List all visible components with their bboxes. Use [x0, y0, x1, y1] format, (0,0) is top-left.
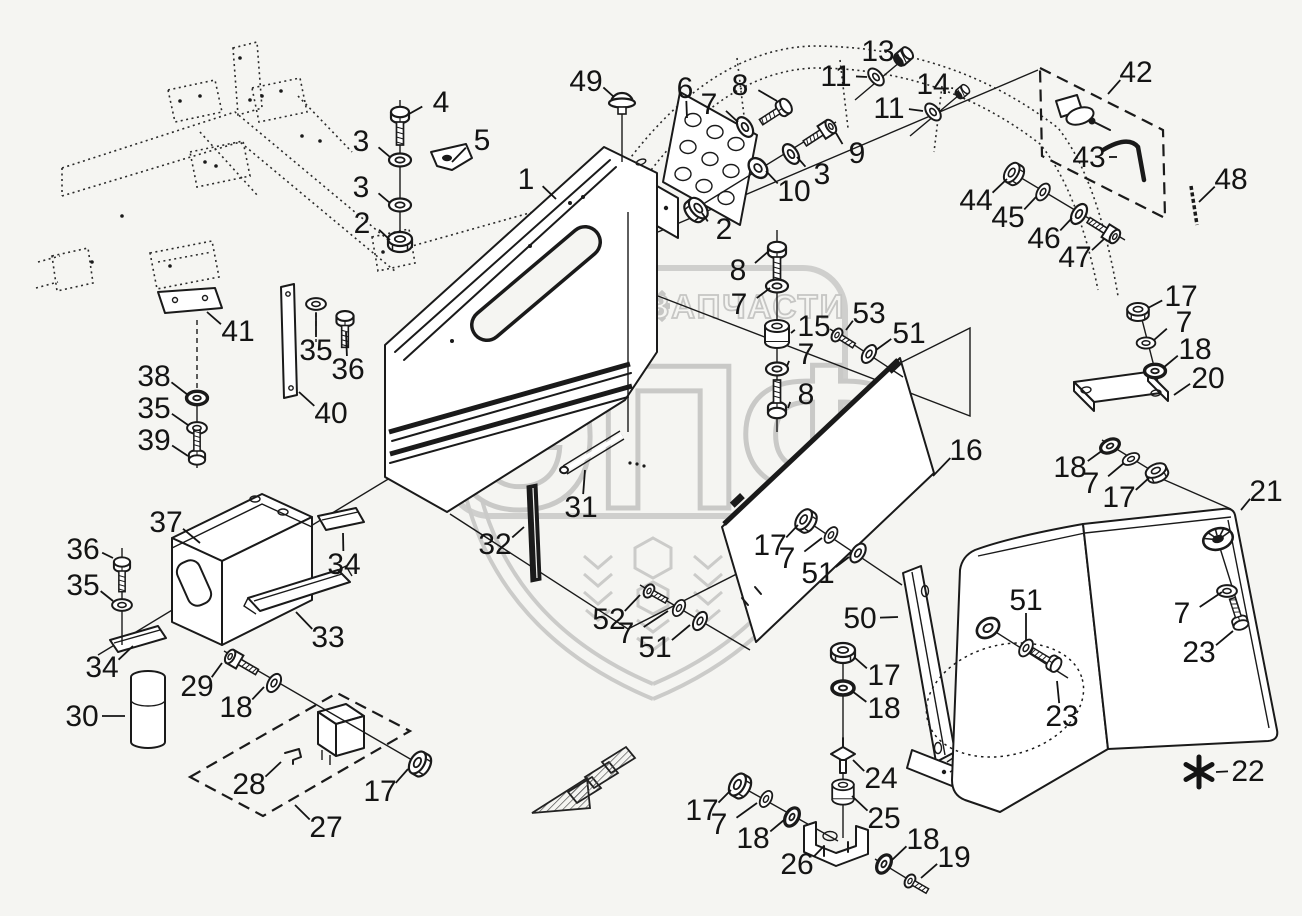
footnote-asterisk [1186, 757, 1212, 787]
callout-label-26: 26 [780, 848, 813, 881]
callout-label-18: 18 [219, 691, 252, 724]
callout-label-53: 53 [852, 297, 885, 330]
callout-label-7: 7 [1083, 467, 1100, 500]
grease-canister-30 [131, 671, 165, 748]
callout-label-8: 8 [798, 378, 815, 411]
callout-label-34: 34 [85, 651, 118, 684]
callout-label-33: 33 [311, 621, 344, 654]
callout-leader [1216, 771, 1228, 772]
allen-key-43 [1103, 142, 1144, 180]
callout-leader [737, 803, 757, 818]
callout-leader [853, 760, 864, 771]
callout-label-43: 43 [1072, 141, 1105, 174]
callout-leader [854, 657, 867, 668]
callout-leader [1024, 197, 1036, 209]
relay-28 [285, 704, 364, 765]
callout-leader [892, 846, 906, 860]
callout-label-45: 45 [991, 201, 1024, 234]
callout-label-17: 17 [1102, 481, 1135, 514]
strap-40 [281, 284, 297, 398]
callout-leader [856, 76, 867, 77]
callout-label-18: 18 [906, 823, 939, 856]
callout-label-3: 3 [353, 125, 370, 158]
callout-label-20: 20 [1191, 362, 1224, 395]
direction-arrow [532, 747, 635, 813]
callout-label-14: 14 [916, 68, 949, 101]
callout-leader [921, 864, 937, 878]
callout-label-10: 10 [777, 175, 810, 208]
callout-leader [852, 691, 866, 702]
pin-24 [831, 738, 855, 773]
callout-label-46: 46 [1027, 222, 1060, 255]
callout-label-37: 37 [149, 506, 182, 539]
callout-leader [836, 133, 843, 144]
callout-label-38: 38 [137, 360, 170, 393]
callout-leader [172, 414, 188, 425]
callout-label-28: 28 [232, 768, 265, 801]
callout-label-7: 7 [711, 808, 728, 841]
callout-leader [852, 796, 868, 811]
callout-leader [379, 230, 390, 240]
callout-label-7: 7 [701, 88, 718, 121]
callout-label-32: 32 [478, 528, 511, 561]
callout-leader [909, 109, 923, 111]
callout-leader [207, 312, 221, 324]
callout-leader [603, 87, 614, 97]
callout-label-17: 17 [867, 659, 900, 692]
callout-leader [252, 687, 264, 699]
callout-label-44: 44 [959, 184, 992, 217]
callout-label-35: 35 [299, 334, 332, 367]
callout-leader [1136, 477, 1150, 490]
callout-label-35: 35 [66, 569, 99, 602]
callout-leader [409, 107, 422, 114]
callout-label-49: 49 [569, 65, 602, 98]
callout-label-39: 39 [137, 424, 170, 457]
callout-label-36: 36 [331, 353, 364, 386]
tool-kit-box-42 [1040, 68, 1197, 225]
callout-label-29: 29 [180, 670, 213, 703]
callout-leader [171, 382, 188, 395]
callout-leader [766, 171, 778, 183]
callout-label-2: 2 [354, 207, 371, 240]
wing-bolt [1056, 95, 1110, 130]
callout-label-4: 4 [433, 86, 450, 119]
callout-label-25: 25 [867, 802, 900, 835]
callout-label-2: 2 [716, 213, 733, 246]
callout-label-18: 18 [867, 692, 900, 725]
callout-leader [1088, 450, 1103, 461]
callout-label-51: 51 [1009, 584, 1042, 617]
callout-label-1: 1 [518, 163, 535, 196]
callout-leader [672, 625, 690, 640]
callout-label-8: 8 [730, 254, 747, 287]
callout-label-7: 7 [731, 288, 748, 321]
parts-diagram-page: ТЕХНИКА ЗАПЧАСТИ ЭПФ [0, 0, 1302, 916]
callout-label-34: 34 [327, 548, 360, 581]
callout-leader [1154, 329, 1167, 340]
callout-label-13: 13 [861, 35, 894, 68]
callout-leader [265, 762, 281, 777]
callout-label-27: 27 [309, 811, 342, 844]
callout-label-31: 31 [564, 491, 597, 524]
callout-leader [299, 392, 314, 406]
callout-label-6: 6 [677, 72, 694, 105]
callout-leader [1174, 384, 1190, 395]
callout-label-51: 51 [892, 317, 925, 350]
callout-label-23: 23 [1045, 700, 1078, 733]
callout-label-51: 51 [801, 557, 834, 590]
callout-label-51: 51 [638, 631, 671, 664]
callout-label-7: 7 [798, 338, 815, 371]
callout-leader [1060, 218, 1072, 230]
callout-leader [396, 769, 408, 783]
callout-leader [933, 458, 950, 476]
callout-leader [101, 591, 113, 601]
battery-37 [172, 494, 312, 645]
callout-leader [770, 820, 784, 831]
pin-48 [1191, 186, 1197, 225]
callout-leader [102, 553, 113, 558]
callout-label-48: 48 [1214, 163, 1247, 196]
exploded-view-diagram: ТЕХНИКА ЗАПЧАСТИ ЭПФ [0, 0, 1302, 916]
callout-leader [755, 250, 770, 263]
callout-label-7: 7 [1174, 597, 1191, 630]
callout-leader [758, 90, 777, 101]
callout-label-18: 18 [736, 822, 769, 855]
callout-label-8: 8 [732, 69, 749, 102]
callout-leader [379, 193, 390, 203]
callout-label-3: 3 [814, 158, 831, 191]
hold-down-rail-34-top [318, 508, 364, 530]
callout-label-41: 41 [221, 315, 254, 348]
callout-label-16: 16 [949, 434, 982, 467]
cover-panel-21 [952, 509, 1277, 812]
callout-label-36: 36 [66, 533, 99, 566]
callout-label-40: 40 [314, 397, 347, 430]
callout-leader [1092, 239, 1104, 250]
callout-label-23: 23 [1182, 636, 1215, 669]
callout-label-7: 7 [618, 617, 635, 650]
callout-label-7: 7 [779, 542, 796, 575]
callout-label-11: 11 [820, 60, 851, 93]
callout-leader [295, 805, 310, 819]
callout-label-50: 50 [843, 602, 876, 635]
callout-label-21: 21 [1249, 475, 1282, 508]
callout-leader [718, 790, 731, 803]
callout-leader [1108, 463, 1124, 476]
support-brace-50 [903, 566, 958, 786]
callout-leader [379, 147, 390, 157]
mount-plate-41 [158, 288, 222, 313]
callout-leader [880, 617, 898, 618]
callout-label-19: 19 [937, 841, 970, 874]
callout-label-9: 9 [849, 137, 866, 170]
callout-label-47: 47 [1058, 241, 1091, 274]
callout-leader [1148, 300, 1162, 308]
callout-leader [1199, 187, 1215, 202]
callout-label-11: 11 [873, 92, 904, 125]
callout-leader [172, 446, 188, 456]
callout-label-24: 24 [864, 762, 897, 795]
callout-label-22: 22 [1231, 755, 1264, 788]
callout-label-35: 35 [137, 392, 170, 425]
callout-label-5: 5 [474, 124, 491, 157]
callout-label-42: 42 [1119, 56, 1152, 89]
hold-down-rail-34-bottom [110, 626, 166, 652]
callout-leader [993, 179, 1007, 193]
callout-label-17: 17 [363, 775, 396, 808]
callout-leader [1163, 356, 1178, 368]
callout-label-3: 3 [353, 171, 370, 204]
callout-label-30: 30 [65, 700, 98, 733]
callout-leader [296, 612, 312, 629]
